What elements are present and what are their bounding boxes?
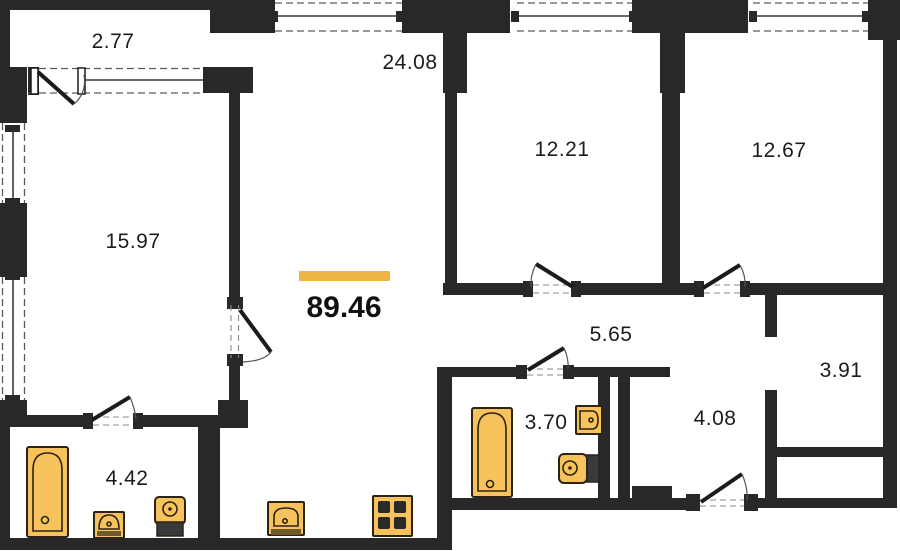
wall-segment (0, 203, 27, 277)
wall-segment (229, 93, 240, 303)
door-jamb (571, 281, 581, 297)
toilet-icon (559, 454, 599, 483)
wall-segment (598, 377, 610, 498)
wall-segment (0, 67, 27, 123)
door-jamb (523, 281, 533, 297)
room-area-balcony: 2.77 (92, 30, 135, 53)
window-jamb (862, 11, 870, 22)
sink-icon (576, 406, 602, 434)
wall-segment (565, 367, 670, 377)
door-jamb (516, 365, 527, 379)
door-arc (243, 352, 271, 362)
wall-segment (137, 415, 220, 427)
wall-segment (577, 283, 698, 295)
room-area-room: 15.97 (105, 230, 160, 253)
window-jamb (629, 11, 637, 22)
door-jamb (686, 494, 700, 511)
stove-icon (373, 496, 412, 536)
wall-segment (777, 447, 883, 457)
wall-segment (6, 0, 220, 10)
wall-segment (0, 538, 452, 550)
door-jamb (227, 297, 243, 309)
window-jamb (749, 11, 757, 22)
wall-segment (10, 415, 88, 427)
wall-segment (660, 33, 685, 93)
wall-segment (437, 367, 525, 377)
wall-segment (632, 0, 748, 33)
wall-segment (437, 377, 452, 540)
wall-segment (443, 283, 530, 295)
wall-segment (0, 0, 10, 70)
door-jamb (694, 281, 704, 297)
room-area-hallway: 5.65 (590, 323, 633, 346)
wall-segment (618, 377, 630, 498)
window-jamb (511, 11, 519, 22)
window-jamb (5, 273, 20, 280)
room-area-living: 24.08 (382, 51, 437, 74)
room-area-bathroom-2: 4.42 (106, 467, 149, 490)
door-jamb (83, 413, 93, 429)
total-area-value: 89.46 (306, 291, 381, 324)
total-area-accent-bar (299, 271, 390, 281)
room-area-bedroom-1: 12.21 (534, 138, 589, 161)
wall-segment (632, 486, 672, 498)
wall-segment (0, 400, 27, 416)
floor-plan: 2.77 24.08 12.21 12.67 15.97 5.65 3.91 3… (0, 0, 900, 551)
wall-segment (198, 427, 220, 542)
wall-segment (0, 416, 10, 550)
wall-segment (210, 0, 275, 33)
wall-segment (443, 33, 467, 93)
kitchen-sink-icon (268, 502, 304, 535)
wall-segment (883, 33, 897, 508)
sink-icon (94, 512, 124, 538)
door-swing-icon (240, 310, 271, 352)
entrance-door-swing-icon (701, 474, 742, 502)
wall-segment (218, 400, 248, 428)
wall-segment (450, 498, 690, 510)
wall-segment (662, 93, 680, 283)
room-area-bathroom: 3.70 (525, 411, 568, 434)
room-area-bedroom-2: 12.67 (751, 139, 806, 162)
room-area-corridor: 4.08 (694, 407, 737, 430)
door-swing-icon (528, 348, 564, 370)
floor-plan-svg: 2.77 24.08 12.21 12.67 15.97 5.65 3.91 3… (0, 0, 900, 551)
wall-segment (765, 390, 777, 498)
wall-segment (203, 67, 253, 93)
bathtub-icon (472, 408, 512, 497)
window-jamb (5, 198, 20, 205)
window-jamb (5, 395, 20, 402)
door-swing-icon (38, 72, 74, 104)
toilet-icon (155, 497, 185, 536)
door-jamb (133, 413, 143, 429)
wall-segment (746, 283, 897, 295)
wall-segment (746, 498, 897, 508)
wall-segment (402, 0, 510, 33)
wall-segment (765, 295, 777, 337)
window-jamb (270, 11, 278, 22)
door-frame (31, 68, 38, 94)
door-jamb (227, 354, 243, 366)
door-jamb (744, 494, 758, 511)
room-area-storage: 3.91 (820, 359, 863, 382)
wall-segment (445, 93, 457, 283)
door-swing-icon (536, 264, 573, 287)
bathtub-icon (27, 447, 68, 537)
